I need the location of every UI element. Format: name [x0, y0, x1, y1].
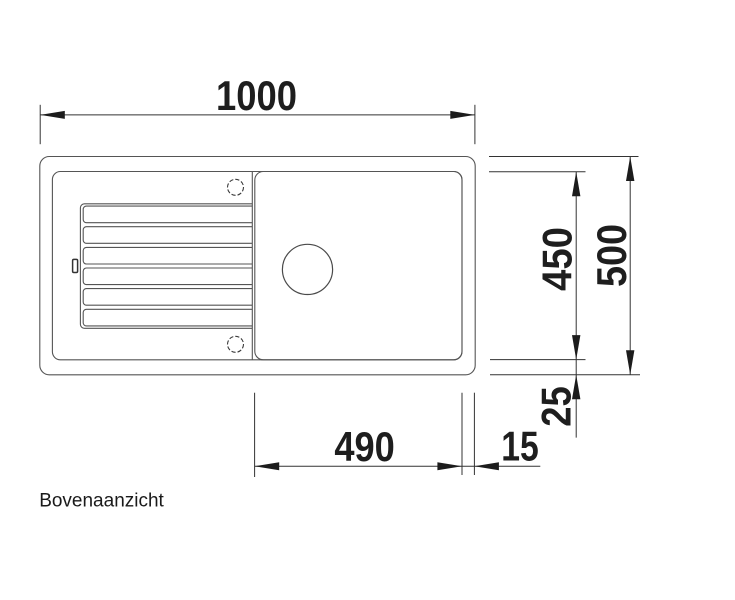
svg-text:1000: 1000: [216, 72, 297, 119]
svg-text:Bovenaanzicht: Bovenaanzicht: [39, 490, 164, 511]
svg-text:450: 450: [534, 227, 581, 291]
svg-text:15: 15: [501, 423, 539, 470]
svg-text:500: 500: [588, 224, 635, 287]
svg-text:490: 490: [334, 423, 395, 470]
svg-text:25: 25: [533, 386, 580, 427]
